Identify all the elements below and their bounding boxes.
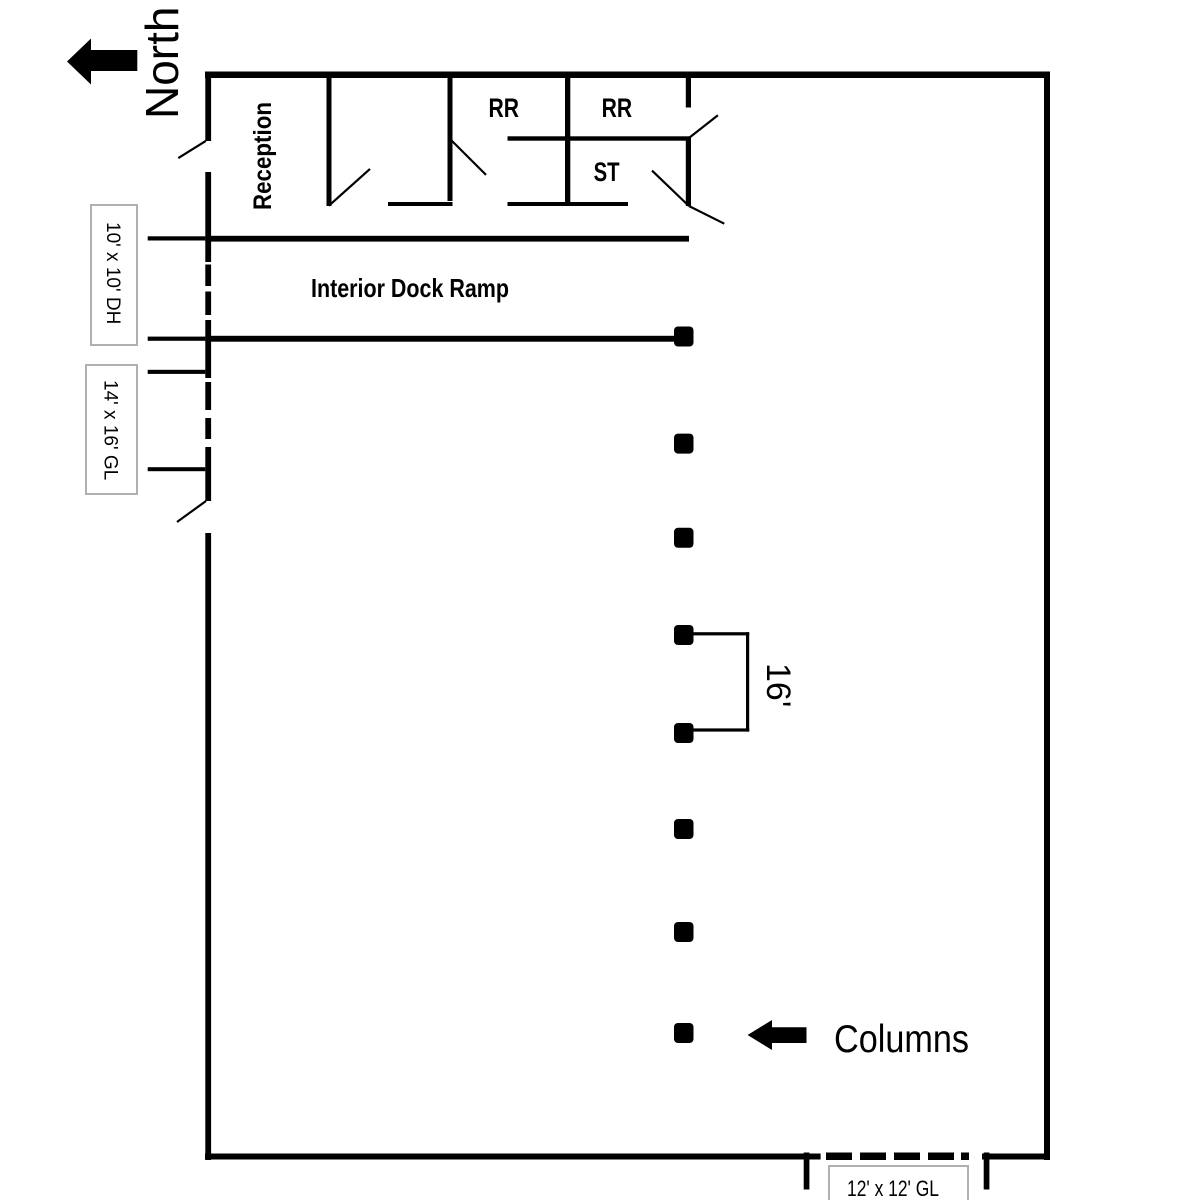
svg-text:12' x 12' GL: 12' x 12' GL bbox=[847, 1176, 939, 1200]
svg-text:RR: RR bbox=[489, 93, 520, 123]
svg-text:16': 16' bbox=[759, 663, 797, 707]
svg-text:North: North bbox=[136, 7, 188, 119]
svg-text:Interior Dock Ramp: Interior Dock Ramp bbox=[311, 273, 509, 303]
svg-text:Reception: Reception bbox=[249, 102, 277, 210]
svg-text:14' x 16' GL: 14' x 16' GL bbox=[100, 380, 121, 480]
svg-text:Columns: Columns bbox=[834, 1018, 969, 1061]
svg-text:ST: ST bbox=[594, 157, 620, 187]
svg-text:10' x 10' DH: 10' x 10' DH bbox=[102, 222, 123, 324]
svg-text:RR: RR bbox=[602, 93, 633, 123]
